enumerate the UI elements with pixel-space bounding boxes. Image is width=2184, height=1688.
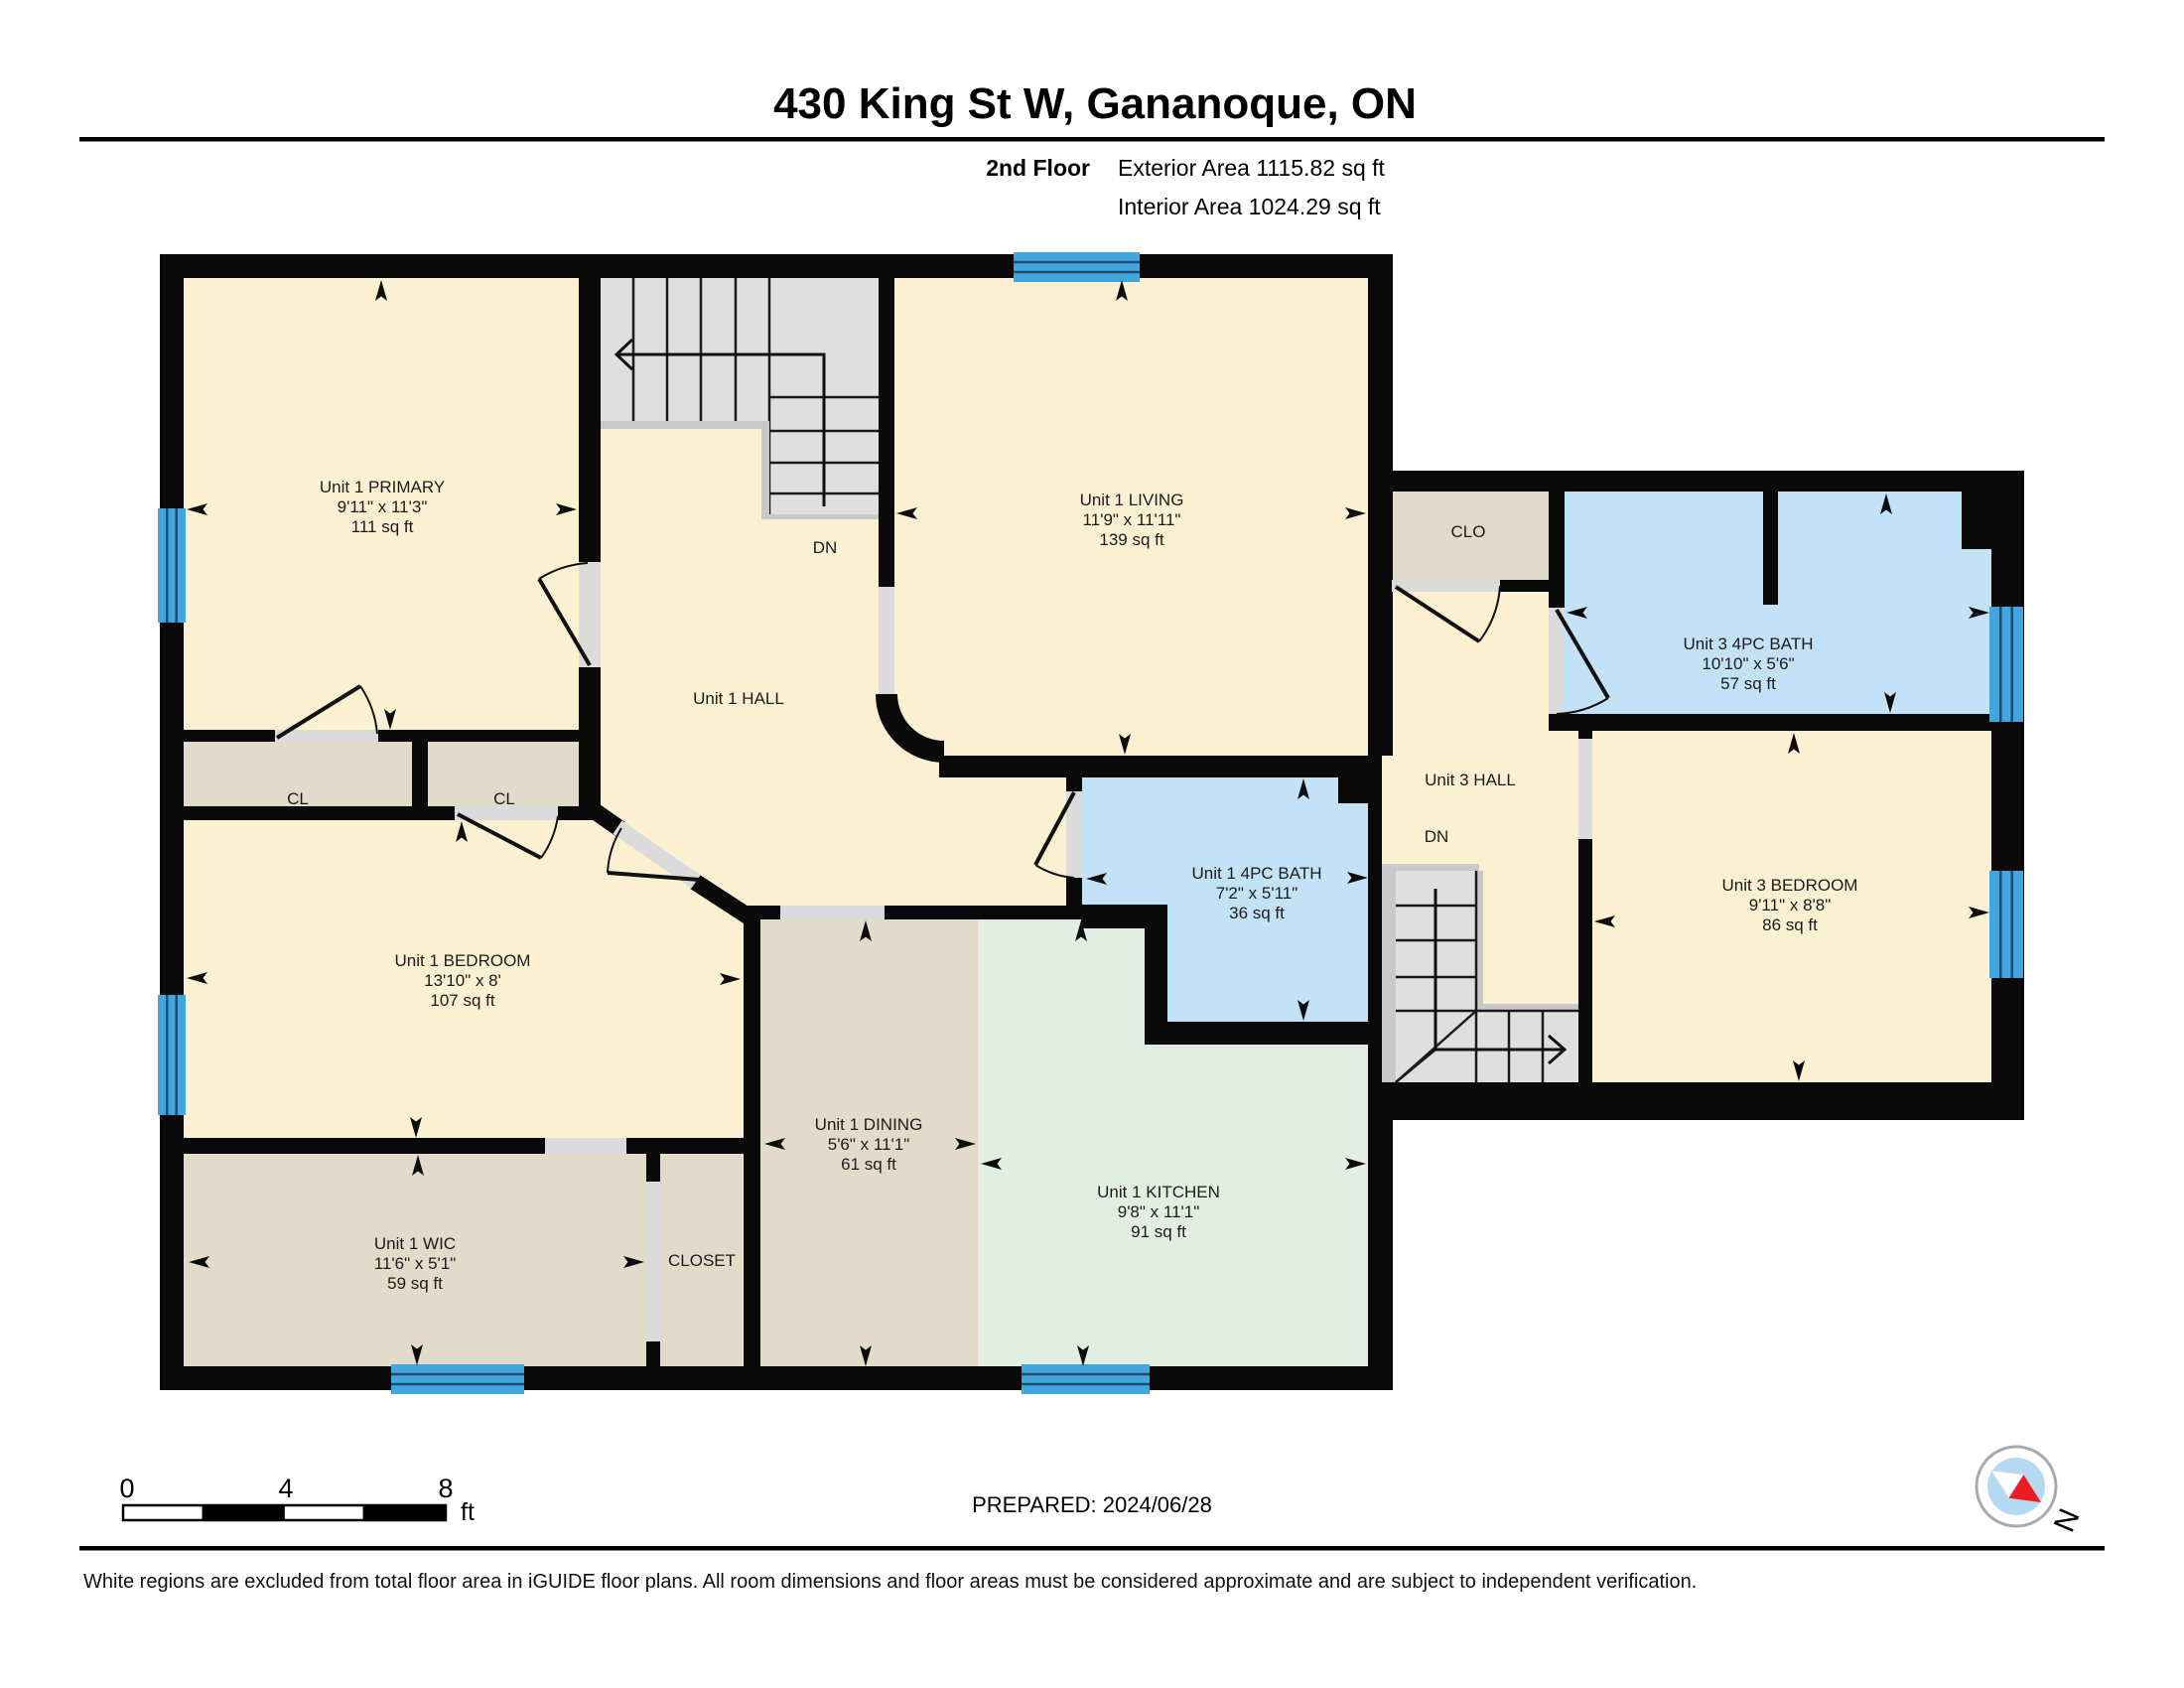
svg-text:8: 8 bbox=[438, 1474, 453, 1503]
svg-text:Interior Area 1024.29 sq ft: Interior Area 1024.29 sq ft bbox=[1118, 194, 1381, 219]
svg-text:13'10" x 8': 13'10" x 8' bbox=[424, 971, 501, 990]
svg-text:9'11" x 11'3": 9'11" x 11'3" bbox=[338, 497, 428, 516]
svg-text:2nd Floor: 2nd Floor bbox=[986, 155, 1090, 181]
svg-text:59 sq ft: 59 sq ft bbox=[387, 1274, 443, 1293]
svg-text:Unit 3 4PC BATH: Unit 3 4PC BATH bbox=[1683, 634, 1813, 653]
svg-text:Unit 1 WIC: Unit 1 WIC bbox=[374, 1234, 456, 1253]
svg-text:36 sq ft: 36 sq ft bbox=[1229, 904, 1285, 922]
svg-text:9'11" x 8'8": 9'11" x 8'8" bbox=[1749, 896, 1832, 914]
svg-text:PREPARED: 2024/06/28: PREPARED: 2024/06/28 bbox=[972, 1492, 1212, 1517]
svg-text:11'6" x 5'1": 11'6" x 5'1" bbox=[374, 1254, 457, 1273]
svg-text:ft: ft bbox=[461, 1498, 475, 1526]
svg-text:White regions are excluded fro: White regions are excluded from total fl… bbox=[83, 1571, 1697, 1593]
svg-text:61 sq ft: 61 sq ft bbox=[841, 1155, 896, 1174]
svg-text:CL: CL bbox=[287, 789, 309, 808]
svg-text:Unit 1 4PC BATH: Unit 1 4PC BATH bbox=[1191, 864, 1321, 883]
svg-text:111 sq ft: 111 sq ft bbox=[351, 517, 414, 536]
svg-text:7'2" x 5'11": 7'2" x 5'11" bbox=[1216, 884, 1298, 903]
svg-text:430 King St W, Gananoque, ON: 430 King St W, Gananoque, ON bbox=[773, 79, 1417, 128]
svg-text:86 sq ft: 86 sq ft bbox=[1762, 915, 1818, 934]
svg-text:Exterior Area 1115.82 sq ft: Exterior Area 1115.82 sq ft bbox=[1118, 155, 1386, 181]
svg-text:Unit 1 BEDROOM: Unit 1 BEDROOM bbox=[395, 951, 531, 970]
svg-text:9'8" x 11'1": 9'8" x 11'1" bbox=[1118, 1202, 1200, 1221]
svg-text:Unit 1 DINING: Unit 1 DINING bbox=[815, 1115, 923, 1134]
svg-text:0: 0 bbox=[119, 1474, 134, 1503]
svg-text:Unit 1 KITCHEN: Unit 1 KITCHEN bbox=[1097, 1183, 1220, 1201]
svg-text:CL: CL bbox=[493, 789, 515, 808]
svg-text:Unit 1 HALL: Unit 1 HALL bbox=[693, 689, 784, 708]
svg-text:CLOSET: CLOSET bbox=[668, 1251, 736, 1270]
svg-text:107 sq ft: 107 sq ft bbox=[430, 991, 494, 1010]
svg-text:139 sq ft: 139 sq ft bbox=[1099, 530, 1163, 549]
svg-text:Unit 1 PRIMARY: Unit 1 PRIMARY bbox=[320, 478, 445, 496]
svg-text:11'9" x 11'11": 11'9" x 11'11" bbox=[1083, 510, 1181, 529]
svg-text:Unit 3 HALL: Unit 3 HALL bbox=[1425, 771, 1516, 789]
svg-text:Unit 1 LIVING: Unit 1 LIVING bbox=[1080, 491, 1184, 509]
svg-text:10'10" x 5'6": 10'10" x 5'6" bbox=[1702, 654, 1794, 673]
svg-text:91 sq ft: 91 sq ft bbox=[1131, 1222, 1186, 1241]
svg-text:DN: DN bbox=[813, 538, 838, 557]
svg-text:5'6" x 11'1": 5'6" x 11'1" bbox=[828, 1135, 910, 1154]
svg-text:DN: DN bbox=[1425, 827, 1449, 846]
svg-text:Unit 3 BEDROOM: Unit 3 BEDROOM bbox=[1722, 876, 1858, 895]
svg-text:57 sq ft: 57 sq ft bbox=[1720, 674, 1776, 693]
svg-text:CLO: CLO bbox=[1451, 522, 1486, 541]
svg-text:4: 4 bbox=[278, 1474, 293, 1503]
